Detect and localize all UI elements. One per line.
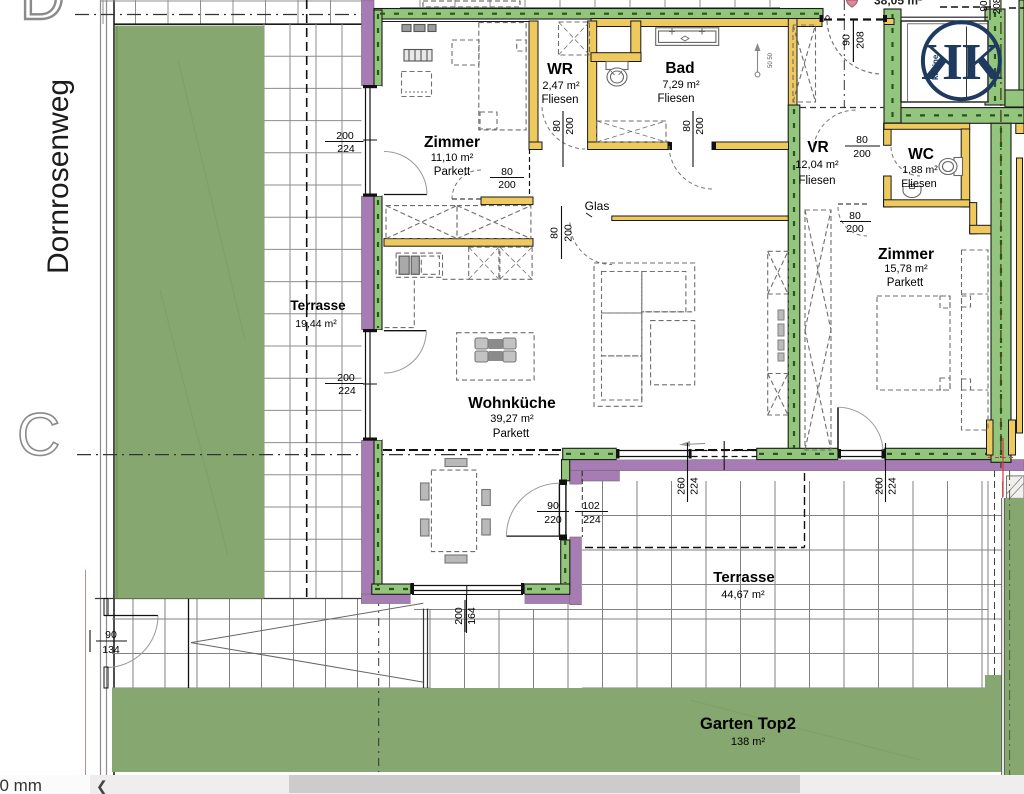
svg-text:80: 80 [501, 166, 513, 178]
svg-text:80: 80 [549, 227, 561, 239]
svg-text:208: 208 [992, 0, 1003, 14]
svg-text:Parkett: Parkett [493, 428, 530, 440]
svg-text:VR: VR [807, 139, 829, 156]
svg-text:224: 224 [689, 477, 701, 495]
svg-text:260: 260 [676, 477, 688, 495]
svg-text:200: 200 [336, 130, 354, 142]
svg-text:15,78 m²: 15,78 m² [884, 263, 928, 275]
svg-text:K: K [962, 34, 1003, 91]
svg-text:224: 224 [583, 514, 601, 526]
svg-text:Fliesen: Fliesen [901, 178, 936, 190]
svg-text:38,05 m²: 38,05 m² [874, 0, 922, 8]
svg-text:Zimmer: Zimmer [424, 134, 480, 151]
svg-text:Garten Top2: Garten Top2 [700, 715, 796, 733]
svg-text:220: 220 [544, 514, 562, 526]
svg-text:90: 90 [840, 34, 852, 46]
svg-text:200: 200 [498, 179, 516, 191]
svg-text:WR: WR [547, 61, 573, 78]
svg-text:2,47 m²: 2,47 m² [542, 80, 580, 92]
svg-text:12,04 m²: 12,04 m² [795, 159, 839, 171]
svg-text:200: 200 [564, 117, 576, 135]
svg-text:90: 90 [547, 500, 559, 512]
svg-text:200: 200 [453, 607, 465, 625]
svg-text:19,44 m²: 19,44 m² [295, 318, 337, 330]
svg-text:164: 164 [466, 607, 478, 625]
svg-text:50 50: 50 50 [768, 52, 774, 68]
svg-text:Zimmer: Zimmer [878, 246, 934, 263]
svg-text:Fliesen: Fliesen [657, 93, 694, 105]
svg-text:❮: ❮ [96, 778, 108, 794]
svg-text:200: 200 [853, 148, 871, 160]
svg-text:Parkett: Parkett [887, 277, 924, 289]
svg-text:20 mm: 20 mm [0, 776, 42, 794]
svg-text:Fliesen: Fliesen [798, 175, 835, 187]
svg-text:Fliesen: Fliesen [541, 94, 578, 106]
svg-text:Glas: Glas [585, 199, 610, 213]
svg-text:208: 208 [854, 31, 866, 49]
svg-text:200: 200 [337, 372, 355, 384]
svg-text:Dornrosenweg: Dornrosenweg [42, 79, 75, 274]
svg-text:90: 90 [979, 0, 990, 12]
svg-text:Bad: Bad [665, 60, 694, 77]
svg-text:7,29 m²: 7,29 m² [662, 79, 700, 91]
svg-text:Parkett: Parkett [434, 166, 471, 178]
svg-text:134: 134 [102, 644, 120, 656]
svg-text:80: 80 [856, 134, 868, 146]
svg-text:C: C [17, 401, 60, 468]
svg-text:224: 224 [337, 143, 355, 155]
svg-text:102: 102 [582, 500, 600, 512]
svg-text:39,27 m²: 39,27 m² [490, 413, 534, 425]
svg-text:200: 200 [874, 477, 886, 495]
svg-text:11,10 m²: 11,10 m² [431, 152, 474, 164]
svg-text:90: 90 [105, 629, 117, 641]
svg-text:200: 200 [846, 223, 864, 235]
svg-text:K: K [921, 34, 962, 91]
svg-text:138 m²: 138 m² [731, 736, 766, 748]
svg-text:44,67 m²: 44,67 m² [721, 589, 765, 601]
svg-text:200: 200 [563, 224, 575, 242]
svg-text:224: 224 [887, 477, 899, 495]
svg-text:Wohnküche: Wohnküche [468, 395, 556, 412]
svg-text:WC: WC [908, 146, 934, 163]
svg-text:1,88 m²: 1,88 m² [902, 164, 938, 176]
svg-text:D: D [20, 0, 65, 33]
svg-text:80: 80 [681, 120, 693, 132]
svg-text:80: 80 [849, 210, 861, 222]
svg-text:kabine: kabine [931, 54, 940, 80]
svg-text:Terrasse: Terrasse [713, 569, 774, 586]
svg-text:80: 80 [551, 120, 563, 132]
svg-text:200: 200 [694, 117, 706, 135]
svg-text:224: 224 [338, 385, 356, 397]
svg-text:Terrasse: Terrasse [290, 298, 346, 313]
